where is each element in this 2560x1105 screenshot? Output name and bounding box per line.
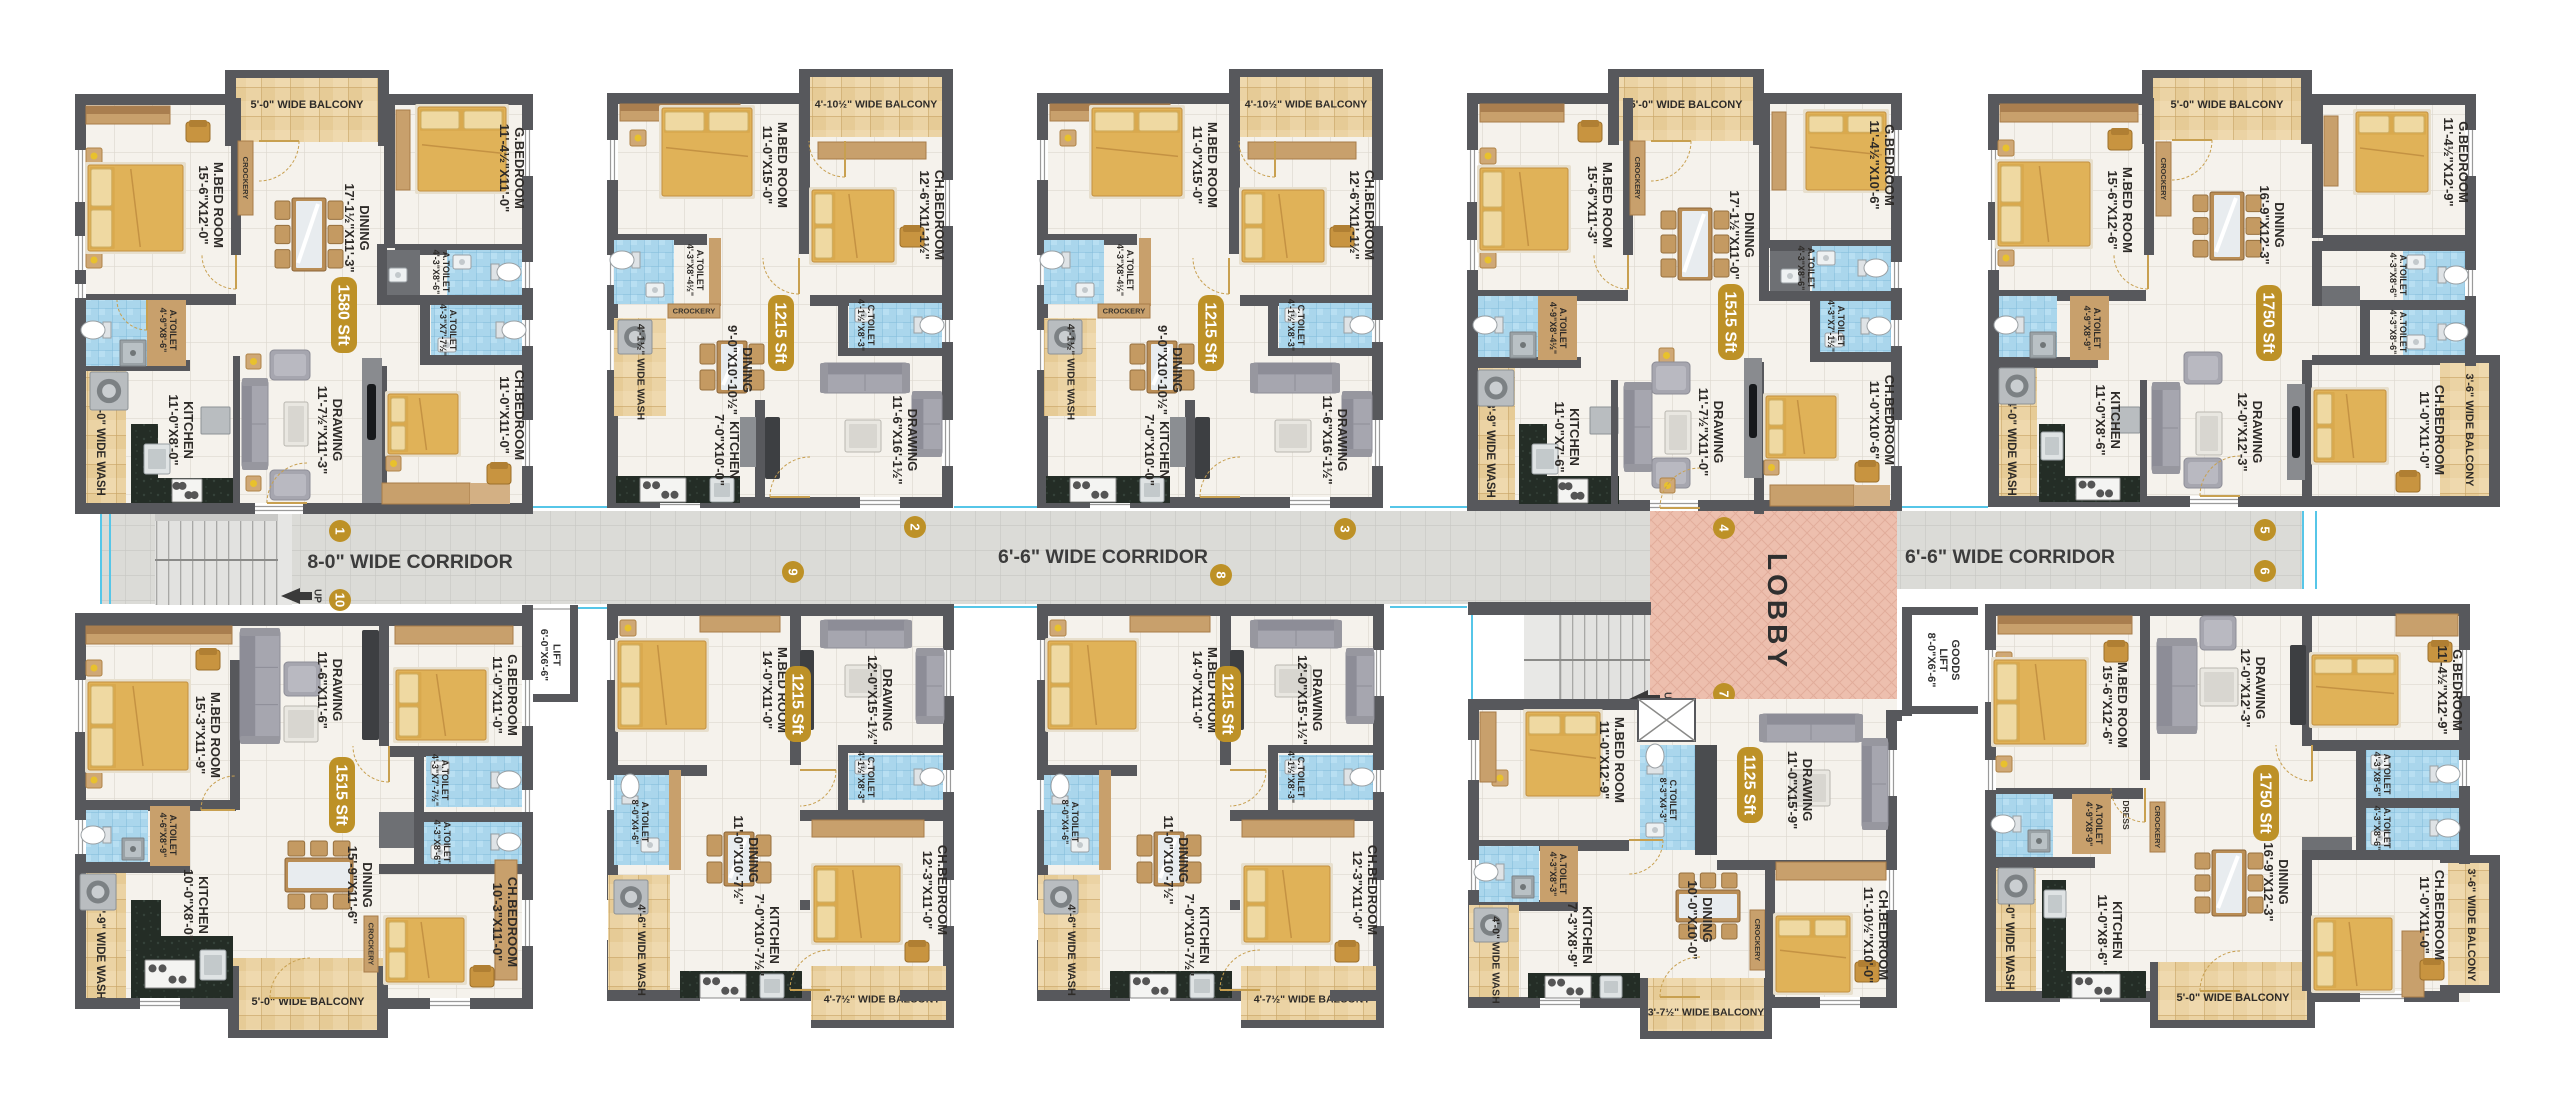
svg-text:C.TOILET8'-3"X4'-3": C.TOILET8'-3"X4'-3" [1658,778,1678,823]
svg-text:5'-0" WIDE BALCONY: 5'-0" WIDE BALCONY [2177,992,2291,1004]
svg-text:1: 1 [333,527,348,534]
svg-text:4: 4 [1717,524,1732,532]
svg-text:1215 Sft: 1215 Sft [788,673,805,735]
svg-text:C.TOILET4'-1½"X8'-3": C.TOILET4'-1½"X8'-3" [856,299,876,351]
svg-text:1215 Sft: 1215 Sft [1201,302,1218,364]
svg-text:10: 10 [333,593,348,607]
svg-text:1215 Sft: 1215 Sft [771,302,788,364]
svg-text:CH.BEDROOM10'-3"X11'-0": CH.BEDROOM10'-3"X11'-0" [490,877,520,967]
svg-text:A.TOILET4'-9"X8'-6": A.TOILET4'-9"X8'-6" [158,308,178,353]
svg-text:DRAWING11'-7½"X11'-3": DRAWING11'-7½"X11'-3" [315,386,345,475]
svg-text:UP: UP [312,589,323,603]
svg-text:M.BED ROOM11'-0"X12'-9": M.BED ROOM11'-0"X12'-9" [1597,717,1627,803]
svg-text:4'-0" WIDE WASH: 4'-0" WIDE WASH [94,400,106,496]
svg-text:A.TOILET8'-0"X4'-6": A.TOILET8'-0"X4'-6" [1060,800,1080,845]
svg-text:A.TOILET4'-3"X8'-4½": A.TOILET4'-3"X8'-4½" [685,244,705,296]
svg-text:A.TOILET4'-3"X8'-3": A.TOILET4'-3"X8'-3" [1548,852,1568,897]
svg-text:CROCKERY: CROCKERY [241,157,250,200]
svg-text:KITCHEN7'-0"X10'-0": KITCHEN7'-0"X10'-0" [1142,414,1172,486]
svg-text:A.TOILET4'-6"X8'-9": A.TOILET4'-6"X8'-9" [158,813,178,858]
svg-text:A.TOILET4'-3"X7'-1½": A.TOILET4'-3"X7'-1½" [1826,300,1846,352]
svg-text:6'-6" WIDE CORRIDOR: 6'-6" WIDE CORRIDOR [998,546,1208,568]
svg-text:CH.BEDROOM12'-6"X11'-1½": CH.BEDROOM12'-6"X11'-1½" [917,170,947,260]
svg-text:CH.BEDROOM12'-6"X11'-1½": CH.BEDROOM12'-6"X11'-1½" [1347,170,1377,260]
svg-text:C.TOILET4'-1½"X8'-3": C.TOILET4'-1½"X8'-3" [1286,299,1306,351]
svg-text:4'-6" WIDE WASH: 4'-6" WIDE WASH [1065,904,1077,996]
svg-text:CROCKERY: CROCKERY [366,923,375,966]
svg-text:DRESS: DRESS [2121,800,2131,830]
svg-text:M.BED ROOM15'-6"X12'-0": M.BED ROOM15'-6"X12'-0" [196,162,226,248]
svg-text:A.TOILET4'-3"X8'-6": A.TOILET4'-3"X8'-6" [2388,310,2408,355]
svg-text:A.TOILET4'-3"X8'-6": A.TOILET4'-3"X8'-6" [2372,752,2392,797]
svg-text:CH.BEDROOM11'-10½"X10'-0": CH.BEDROOM11'-10½"X10'-0" [1861,887,1891,984]
svg-text:CH.BEDROOM12'-3"X11'-0": CH.BEDROOM12'-3"X11'-0" [1350,845,1380,935]
svg-text:KITCHEN11'-0"X7'-6": KITCHEN11'-0"X7'-6" [1552,401,1582,472]
svg-text:4'-0" WIDE WASH: 4'-0" WIDE WASH [1489,916,1501,1003]
svg-text:KITCHEN11'-0"X8'-6": KITCHEN11'-0"X8'-6" [2095,894,2125,965]
svg-text:CROCKERY: CROCKERY [2153,806,2162,849]
svg-text:7: 7 [1717,690,1732,697]
svg-text:8: 8 [1214,571,1229,578]
svg-text:LOBBY: LOBBY [1762,553,1793,671]
svg-text:5: 5 [2258,526,2273,533]
svg-text:M.BED ROOM15'-3"X11'-9": M.BED ROOM15'-3"X11'-9" [193,692,223,778]
svg-text:9: 9 [786,568,801,575]
svg-text:6: 6 [2258,567,2273,574]
svg-text:M.BED ROOM11'-0"X15'-0": M.BED ROOM11'-0"X15'-0" [1190,122,1220,208]
svg-text:A.TOILET4'-3"X8'-6": A.TOILET4'-3"X8'-6" [2388,253,2408,298]
svg-text:DRAWING12'-0"X12'-3": DRAWING12'-0"X12'-3" [2238,648,2268,727]
svg-text:KITCHEN11'-0"X8'-0": KITCHEN11'-0"X8'-0" [166,394,196,465]
svg-text:CH.BEDROOM11'-0"X11'-0": CH.BEDROOM11'-0"X11'-0" [2417,870,2447,960]
svg-text:CROCKERY: CROCKERY [1103,307,1146,316]
svg-text:8-0" WIDE CORRIDOR: 8-0" WIDE CORRIDOR [307,551,512,573]
svg-text:4'-6" WIDE WASH: 4'-6" WIDE WASH [635,904,647,996]
svg-text:A.TOILET4'-9"X8'-9": A.TOILET4'-9"X8'-9" [2084,802,2104,847]
svg-text:DRAWING11'-7½"X11'-0": DRAWING11'-7½"X11'-0" [1696,388,1726,477]
svg-text:1515 Sft: 1515 Sft [1721,291,1738,353]
svg-text:C.TOILET4'-1½"X8'-3": C.TOILET4'-1½"X8'-3" [856,751,876,803]
svg-text:A.TOILET4'-3"X8'-6": A.TOILET4'-3"X8'-6" [2372,806,2392,851]
svg-text:A.TOILET4'-3"X8'-4½": A.TOILET4'-3"X8'-4½" [1115,244,1135,296]
svg-text:M.BED ROOM15'-6"X12'-6": M.BED ROOM15'-6"X12'-6" [2100,662,2130,748]
svg-text:3'-7½" WIDE BALCONY: 3'-7½" WIDE BALCONY [1648,1007,1765,1019]
svg-text:A.TOILET4'-3"X8'-6": A.TOILET4'-3"X8'-6" [1796,246,1816,291]
svg-text:DRAWING11'-6"X11'-6": DRAWING11'-6"X11'-6" [315,651,345,729]
svg-text:CROCKERY: CROCKERY [673,307,716,316]
svg-text:DRAWING12'-0"X12'-3": DRAWING12'-0"X12'-3" [2235,392,2265,471]
svg-text:KITCHEN10'-0"X8'-0": KITCHEN10'-0"X8'-0" [181,869,211,941]
svg-text:M.BED ROOM15'-6"X11'-3": M.BED ROOM15'-6"X11'-3" [1585,162,1615,248]
svg-text:3'-6" WIDE BALCONY: 3'-6" WIDE BALCONY [2463,374,2475,488]
svg-text:5'-0" WIDE BALCONY: 5'-0" WIDE BALCONY [1630,99,1744,111]
svg-text:1750 Sft: 1750 Sft [2256,772,2273,834]
svg-text:3: 3 [1338,525,1353,532]
svg-text:G.BEDROOM11'-4½"X10'-6": G.BEDROOM11'-4½"X10'-6" [1867,120,1897,209]
svg-text:KITCHEN11'-0"X8'-6": KITCHEN11'-0"X8'-6" [2093,384,2123,455]
svg-text:CH.BEDROOM11'-0"X11'-0": CH.BEDROOM11'-0"X11'-0" [2417,385,2447,475]
svg-text:A.TOILET4'-9"X8'-4½": A.TOILET4'-9"X8'-4½" [1548,302,1568,354]
svg-text:G.BEDROOM11'-4½"X12'-9": G.BEDROOM11'-4½"X12'-9" [2441,117,2471,206]
svg-text:CH.BEDROOM11'-0"X11'-0": CH.BEDROOM11'-0"X11'-0" [497,370,527,460]
svg-text:5'-0" WIDE BALCONY: 5'-0" WIDE BALCONY [251,99,365,111]
svg-text:A.TOILET4'-3"X7'-7½": A.TOILET4'-3"X7'-7½" [438,304,458,356]
svg-text:A.TOILET4'-3"X8'-6": A.TOILET4'-3"X8'-6" [432,820,452,865]
svg-text:4'-10½" WIDE BALCONY: 4'-10½" WIDE BALCONY [815,99,937,111]
svg-text:CROCKERY: CROCKERY [1753,919,1762,962]
svg-text:4'-0" WIDE WASH: 4'-0" WIDE WASH [2005,400,2017,496]
svg-text:1215 Sft: 1215 Sft [1218,673,1235,735]
svg-text:3'-9" WIDE WASH: 3'-9" WIDE WASH [94,904,106,1000]
svg-text:KITCHEN7'-0"X10'-0": KITCHEN7'-0"X10'-0" [712,414,742,486]
svg-text:DRAWING11'-0"X15'-9": DRAWING11'-0"X15'-9" [1785,751,1815,830]
svg-text:G.BEDROOM11'-4½"X12'-9": G.BEDROOM11'-4½"X12'-9" [2435,645,2465,734]
svg-text:1750 Sft: 1750 Sft [2259,292,2276,354]
svg-text:4'-10½" WIDE BALCONY: 4'-10½" WIDE BALCONY [1245,99,1367,111]
svg-text:2: 2 [908,523,923,530]
svg-text:4'-1½" WIDE WASH: 4'-1½" WIDE WASH [1064,324,1076,420]
svg-text:CH.BEDROOM12'-3"X11'-0": CH.BEDROOM12'-3"X11'-0" [920,845,950,935]
svg-text:4'-1½" WIDE WASH: 4'-1½" WIDE WASH [634,324,646,420]
svg-text:1125 Sft: 1125 Sft [1740,755,1757,816]
svg-text:5'-0" WIDE BALCONY: 5'-0" WIDE BALCONY [2171,99,2285,111]
svg-text:1515 Sft: 1515 Sft [332,764,349,826]
svg-text:DRAWING11'-6"X16'-1½": DRAWING11'-6"X16'-1½" [1320,395,1350,484]
svg-text:C.TOILET4'-1½"X8'-3": C.TOILET4'-1½"X8'-3" [1286,751,1306,803]
svg-text:3'-9" WIDE WASH: 3'-9" WIDE WASH [1484,402,1496,498]
svg-text:4'-0" WIDE WASH: 4'-0" WIDE WASH [2003,894,2015,990]
svg-text:M.BED ROOM11'-0"X15'-0": M.BED ROOM11'-0"X15'-0" [760,122,790,208]
svg-text:G.BEDROOM11'-0"X11'-0": G.BEDROOM11'-0"X11'-0" [490,654,520,736]
svg-text:M.BED ROOM15'-6"X12'-6": M.BED ROOM15'-6"X12'-6" [2105,167,2135,253]
svg-text:A.TOILET8'-0"X4'-6": A.TOILET8'-0"X4'-6" [630,800,650,845]
svg-text:CROCKERY: CROCKERY [1633,157,1642,200]
svg-text:3'-6" WIDE BALCONY: 3'-6" WIDE BALCONY [2465,869,2477,983]
svg-text:KITCHEN7'-3"X8'-9": KITCHEN7'-3"X8'-9" [1565,903,1595,968]
svg-text:DRAWING11'-6"X16'-1½": DRAWING11'-6"X16'-1½" [890,395,920,484]
svg-text:6'-6" WIDE CORRIDOR: 6'-6" WIDE CORRIDOR [1905,546,2115,568]
svg-text:A.TOILET4'-9"X8'-9": A.TOILET4'-9"X8'-9" [2082,306,2102,351]
svg-text:CROCKERY: CROCKERY [2159,158,2168,201]
svg-text:G.BEDROOM11'-4½"X11'-0": G.BEDROOM11'-4½"X11'-0" [497,124,527,213]
svg-text:1580 Sft: 1580 Sft [334,284,351,346]
svg-text:CH.BEDROOM11'-0"X10'-6": CH.BEDROOM11'-0"X10'-6" [1867,375,1897,465]
svg-text:A.TOILET4'-3"X8'-6": A.TOILET4'-3"X8'-6" [431,250,451,295]
svg-text:A.TOILET4'-3"X7'-7½": A.TOILET4'-3"X7'-7½" [430,754,450,806]
